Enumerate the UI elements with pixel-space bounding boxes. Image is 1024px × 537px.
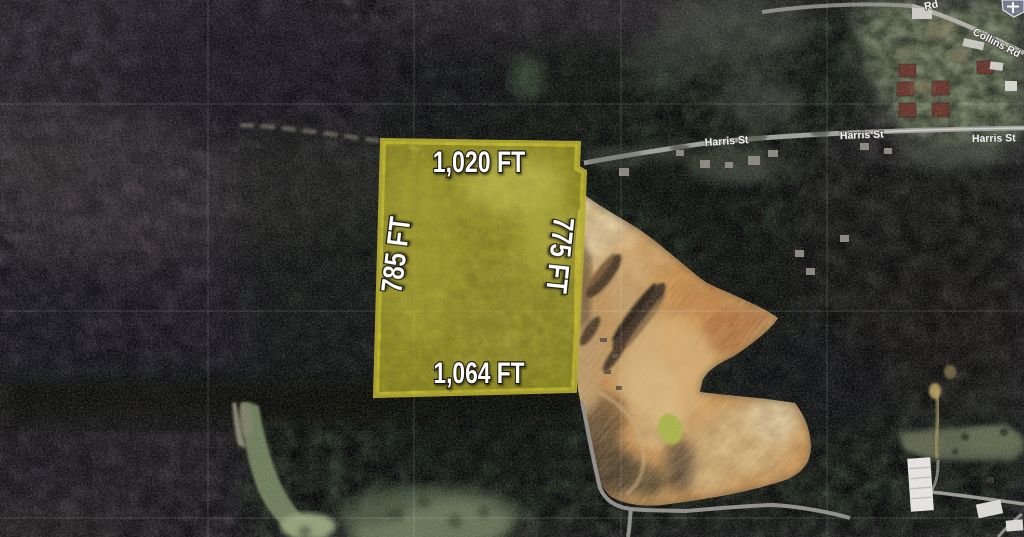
svg-text:Harris St: Harris St [840, 128, 885, 142]
svg-text:1,020 FT: 1,020 FT [433, 145, 526, 179]
svg-text:Harris St: Harris St [972, 132, 1016, 145]
svg-text:1,064 FT: 1,064 FT [433, 356, 524, 390]
